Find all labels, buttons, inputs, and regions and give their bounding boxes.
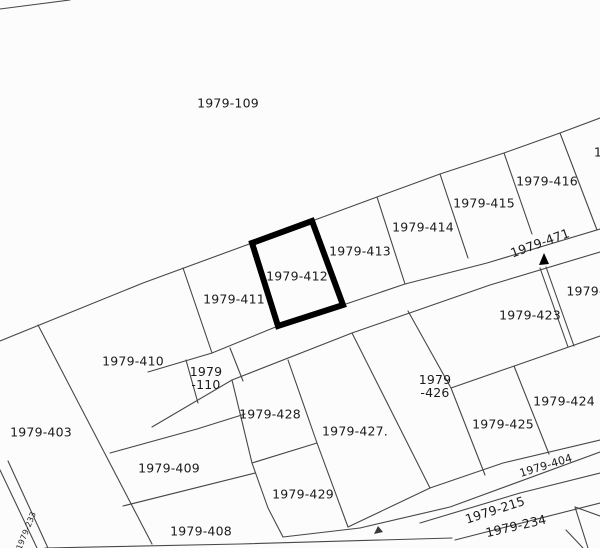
boundary-line: [377, 197, 405, 284]
boundary-line: [352, 333, 430, 488]
parcel-1979-428-label: 1979-428: [239, 407, 301, 420]
parcel-1979-415-label: 1979-415: [453, 196, 515, 209]
boundary-line: [283, 528, 360, 537]
road-edge-line: [45, 538, 452, 548]
boundary-line: [232, 380, 252, 463]
boundary-line: [288, 360, 348, 527]
boundary-line: [110, 414, 245, 453]
boundary-line: [230, 348, 243, 381]
parcel-1979-413-label: 1979-413: [329, 244, 391, 257]
parcel-1979-426-label: 1979 -426: [419, 373, 452, 400]
boundary-line: [514, 366, 549, 454]
parcel-1979-412-label: 1979-412: [266, 269, 328, 282]
partial-label-top-right-label: 1: [594, 145, 600, 158]
parcel-1979-410-label: 1979-410: [102, 354, 164, 367]
boundary-line: [0, 0, 70, 9]
boundary-line: [123, 473, 255, 506]
boundary-line: [451, 388, 485, 475]
parcel-1979-429-label: 1979-429: [272, 487, 334, 500]
parcel-1979-110-label: 1979 -110: [190, 365, 223, 392]
boundary-line: [440, 174, 468, 258]
boundary-line: [575, 507, 600, 516]
parcel-1979-408-label: 1979-408: [170, 524, 232, 537]
parcel-1979-409-label: 1979-409: [138, 461, 200, 474]
parcel-1979-411-label: 1979-411: [203, 292, 265, 305]
boundary-line: [183, 268, 212, 353]
boundary-line: [252, 443, 317, 463]
arrow-up-icon: [539, 253, 549, 265]
parcel-1979-424-label: 1979-424: [533, 394, 595, 407]
cadastral-map: 1979-1091979-4161979-4151979-4141979-413…: [0, 0, 600, 548]
partial-label-right-label: 1979-: [566, 284, 600, 297]
parcel-1979-403-label: 1979-403: [10, 425, 72, 438]
parcel-1979-423-label: 1979-423: [499, 308, 561, 321]
parcel-1979-427-label: 1979-427.: [322, 424, 388, 437]
boundary-line: [451, 336, 600, 388]
parcel-1979-109-label: 1979-109: [197, 96, 259, 109]
boundary-line: [504, 153, 532, 234]
parcel-1979-416-label: 1979-416: [516, 174, 578, 187]
parcel-1979-425-label: 1979-425: [472, 417, 534, 430]
parcel-1979-414-label: 1979-414: [392, 220, 454, 233]
junction-tick-icon: [374, 526, 383, 534]
boundary-line: [566, 530, 583, 548]
